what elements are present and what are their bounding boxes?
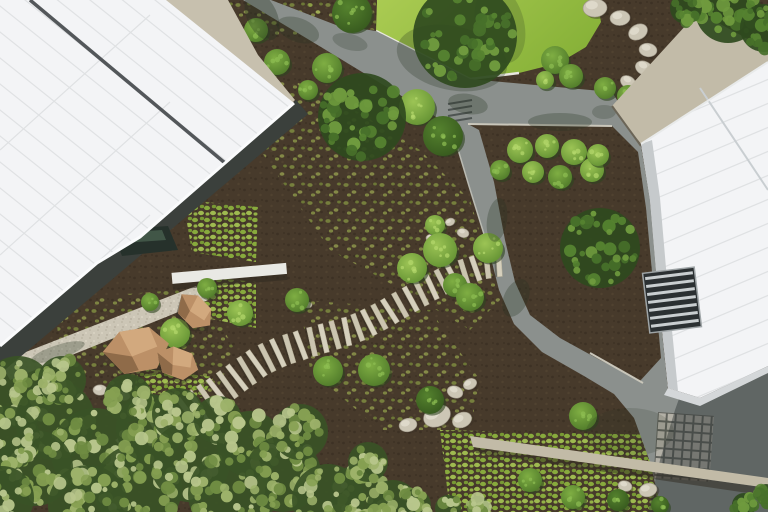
canopy-foliage (388, 121, 397, 130)
bush-leaf (569, 71, 572, 74)
bush-leaf (148, 301, 151, 304)
bush-leaf (322, 374, 325, 377)
canopy-foliage (370, 456, 379, 465)
canopy-foliage (43, 368, 56, 381)
canopy-foliage (467, 38, 478, 49)
canopy-foliage (205, 486, 214, 495)
bush-leaf (326, 363, 330, 367)
canopy-foliage (570, 216, 581, 227)
bush-leaf (579, 156, 584, 161)
canopy-foliage (132, 397, 140, 405)
canopy-foliage (346, 145, 357, 156)
canopy-foliage (176, 422, 184, 430)
aerial-photo-stage (0, 0, 768, 512)
bush-leaf (556, 181, 561, 186)
canopy-foliage (469, 59, 481, 71)
canopy-foliage (54, 477, 67, 490)
bush-leaf (462, 298, 466, 302)
canopy-foliage (259, 450, 267, 458)
canopy-foliage (489, 60, 500, 71)
canopy-foliage (212, 434, 219, 441)
bush-leaf (327, 75, 331, 79)
canopy-foliage (351, 498, 360, 507)
bush-leaf (574, 419, 577, 422)
bush-leaf (528, 171, 530, 173)
canopy-foliage (749, 499, 757, 507)
canopy-foliage (580, 220, 585, 225)
canopy-foliage (501, 19, 510, 28)
canopy-foliage (613, 254, 621, 262)
bush-leaf (563, 173, 568, 178)
canopy-foliage (136, 463, 144, 471)
canopy-foliage (162, 400, 173, 411)
canopy-foliage (477, 50, 485, 58)
canopy-foliage (315, 428, 324, 437)
bush-leaf (291, 304, 295, 308)
canopy-foliage (757, 10, 765, 18)
bush-leaf (420, 105, 423, 108)
canopy-foliage (442, 497, 448, 503)
canopy-foliage (66, 408, 72, 414)
bush-leaf (576, 501, 581, 506)
canopy-foliage (303, 432, 311, 440)
canopy-foliage (606, 229, 612, 235)
canopy-foliage (383, 490, 394, 501)
canopy-foliage (256, 466, 264, 474)
canopy-foliage (22, 377, 32, 387)
canopy-foliage (324, 118, 330, 124)
canopy-foliage (12, 437, 21, 446)
bush-leaf (589, 149, 594, 154)
aerial-courtyard-photo (0, 0, 768, 512)
canopy-foliage (359, 99, 372, 112)
canopy-foliage (387, 85, 400, 98)
bush-leaf (572, 150, 576, 154)
canopy-foliage (122, 379, 132, 389)
canopy-foliage (134, 471, 147, 484)
bush-leaf (355, 6, 358, 9)
canopy-foliage (306, 490, 314, 498)
canopy-foliage (216, 416, 224, 424)
canopy-foliage (220, 399, 234, 413)
bush-leaf (433, 126, 436, 129)
canopy-foliage (354, 103, 359, 108)
bush-leaf (431, 133, 435, 137)
bush-leaf (544, 148, 546, 150)
canopy-foliage (430, 32, 435, 37)
bush-leaf (176, 323, 180, 327)
bush-leaf (659, 497, 663, 501)
canopy-foliage (0, 361, 5, 366)
bush-leaf (439, 254, 442, 257)
canopy-foliage (15, 487, 22, 494)
canopy-foliage (220, 483, 229, 492)
bush-leaf (569, 75, 572, 78)
canopy-foliage (573, 261, 580, 268)
canopy-foliage (84, 491, 96, 503)
canopy-foliage (383, 107, 389, 113)
canopy-foliage (585, 215, 594, 224)
bush-leaf (557, 59, 561, 63)
bush-leaf (238, 303, 242, 307)
bush-leaf (432, 401, 436, 405)
bush-leaf (411, 111, 414, 114)
bush-leaf (349, 11, 354, 16)
canopy-foliage (160, 419, 168, 427)
canopy-foliage (426, 8, 433, 15)
canopy-foliage (74, 441, 88, 455)
canopy-foliage (573, 267, 580, 274)
canopy-foliage (473, 24, 486, 37)
bush-leaf (270, 59, 275, 64)
bush-leaf (278, 54, 283, 59)
louvered-vent (643, 267, 702, 333)
canopy-foliage (135, 432, 149, 446)
canopy-foliage (199, 409, 205, 415)
bush-leaf (662, 505, 666, 509)
bush-leaf (207, 287, 210, 290)
canopy-foliage (91, 483, 102, 494)
canopy-foliage (378, 98, 387, 107)
bush-leaf (456, 283, 460, 287)
canopy-foliage (593, 221, 600, 228)
bush-leaf (411, 114, 415, 118)
canopy-foliage (95, 432, 101, 438)
canopy-foliage (331, 133, 339, 141)
canopy-foliage (347, 89, 355, 97)
canopy-foliage (111, 481, 118, 488)
bush-leaf (552, 140, 555, 143)
canopy-foliage (75, 372, 80, 377)
canopy-foliage (153, 460, 162, 469)
canopy-foliage (161, 481, 175, 495)
canopy-foliage (151, 468, 162, 479)
canopy-foliage (70, 421, 79, 430)
clipped-bush (425, 215, 445, 235)
bush-leaf (302, 88, 305, 91)
canopy-foliage (269, 502, 275, 508)
bush-leaf (174, 330, 178, 334)
canopy-foliage (204, 455, 217, 468)
canopy-foliage (615, 271, 621, 277)
canopy-foliage (91, 424, 97, 430)
bush-leaf (429, 219, 432, 222)
canopy-foliage (131, 501, 137, 507)
bush-leaf (498, 167, 501, 170)
canopy-foliage (6, 469, 11, 474)
bush-leaf (471, 294, 476, 299)
bush-leaf (587, 418, 590, 421)
canopy-foliage (183, 472, 191, 480)
bush-leaf (335, 15, 339, 19)
canopy-foliage (589, 278, 595, 284)
bush-leaf (546, 143, 550, 147)
canopy-foliage (675, 10, 684, 19)
canopy-foliage (18, 447, 25, 454)
canopy-foliage (195, 411, 201, 417)
bush-leaf (581, 411, 586, 416)
canopy-foliage (629, 255, 636, 262)
bush-leaf (452, 288, 457, 293)
bush-leaf (553, 182, 557, 186)
canopy-foliage (608, 279, 614, 285)
canopy-foliage (22, 478, 30, 486)
canopy-foliage (25, 433, 34, 442)
canopy-foliage (129, 408, 137, 416)
canopy-foliage (407, 497, 421, 511)
canopy-foliage (64, 395, 73, 404)
canopy-foliage (295, 442, 300, 447)
clipped-bush (456, 283, 484, 311)
clipped-bush (312, 53, 342, 83)
canopy-foliage (269, 425, 281, 437)
canopy-foliage (320, 101, 327, 108)
canopy-foliage (175, 460, 188, 473)
canopy-foliage (369, 473, 379, 483)
canopy-foliage (317, 468, 323, 474)
canopy-foliage (17, 418, 26, 427)
bush-leaf (520, 151, 524, 155)
bush-leaf (594, 173, 599, 178)
bush-leaf (378, 373, 382, 377)
bush-leaf (238, 312, 241, 315)
canopy-foliage (43, 413, 55, 425)
bush-leaf (338, 0, 343, 5)
bush-leaf (575, 149, 580, 154)
canopy-foliage (591, 211, 597, 217)
canopy-foliage (287, 408, 295, 416)
dappled-shadow (528, 113, 592, 131)
canopy-foliage (450, 74, 457, 81)
canopy-foliage (415, 489, 421, 495)
canopy-foliage (459, 46, 469, 56)
canopy-foliage (376, 111, 389, 124)
bush-leaf (549, 64, 554, 69)
canopy-foliage (182, 391, 187, 396)
canopy-foliage (622, 254, 628, 260)
bush-leaf (299, 291, 302, 294)
bush-leaf (595, 152, 601, 158)
bush-leaf (589, 168, 591, 170)
canopy-foliage (274, 483, 286, 495)
canopy-foliage (333, 492, 339, 498)
canopy-foliage (731, 32, 737, 38)
bush-leaf (439, 248, 443, 252)
bush-leaf (240, 314, 245, 319)
bush-leaf (231, 318, 235, 322)
bush-leaf (360, 6, 365, 11)
bush-leaf (441, 134, 446, 139)
canopy-foliage (91, 410, 98, 417)
bush-leaf (533, 482, 536, 485)
canopy-foliage (118, 440, 131, 453)
bush-leaf (452, 144, 457, 149)
bush-leaf (530, 170, 535, 175)
canopy-foliage (358, 493, 366, 501)
canopy-foliage (491, 13, 497, 19)
bush-leaf (401, 266, 404, 269)
bush-leaf (284, 61, 289, 66)
canopy-foliage (375, 136, 387, 148)
canopy-foliage (755, 39, 763, 47)
clipped-bush (285, 288, 309, 312)
bush-leaf (455, 278, 460, 283)
canopy-foliage (603, 242, 616, 255)
canopy-foliage (271, 472, 279, 480)
bush-leaf (504, 164, 509, 169)
canopy-foliage (504, 47, 509, 52)
clipped-bush (507, 137, 533, 163)
bush-leaf (300, 305, 305, 310)
bush-leaf (442, 142, 447, 147)
canopy-foliage (43, 446, 52, 455)
bush-leaf (407, 278, 410, 281)
canopy-foliage (36, 473, 50, 487)
canopy-foliage (400, 488, 411, 499)
canopy-foliage (238, 446, 245, 453)
canopy-foliage (296, 452, 304, 460)
canopy-foliage (131, 466, 137, 472)
bush-leaf (524, 484, 527, 487)
bush-leaf (586, 172, 591, 177)
canopy-foliage (746, 38, 754, 46)
bush-leaf (544, 79, 547, 82)
canopy-foliage (564, 245, 576, 257)
canopy-foliage (131, 423, 139, 431)
bush-leaf (163, 327, 167, 331)
canopy-foliage (723, 7, 734, 18)
canopy-foliage (369, 85, 378, 94)
bush-leaf (328, 67, 333, 72)
canopy-foliage (102, 497, 111, 506)
canopy-foliage (356, 151, 366, 161)
bush-leaf (529, 478, 532, 481)
bush-leaf (491, 247, 493, 249)
bush-leaf (425, 388, 429, 392)
canopy-foliage (714, 25, 722, 33)
canopy-foliage (5, 408, 16, 419)
canopy-foliage (691, 12, 697, 18)
bush-leaf (366, 362, 371, 367)
bush-leaf (427, 398, 431, 402)
canopy-foliage (16, 360, 23, 367)
canopy-foliage (47, 394, 55, 402)
canopy-foliage (298, 408, 311, 421)
canopy-foliage (425, 64, 431, 70)
canopy-foliage (357, 445, 365, 453)
bush-leaf (295, 301, 299, 305)
bush-leaf (436, 220, 441, 225)
canopy-foliage (109, 387, 120, 398)
bush-leaf (411, 266, 416, 271)
canopy-foliage (154, 442, 164, 452)
dappled-shadow (586, 408, 674, 456)
canopy-foliage (504, 12, 511, 19)
bush-leaf (564, 74, 569, 79)
bush-leaf (546, 53, 549, 56)
canopy-foliage (388, 110, 398, 120)
canopy-foliage (119, 498, 129, 508)
bush-leaf (587, 414, 592, 419)
canopy-foliage (481, 7, 488, 14)
canopy-foliage (471, 501, 477, 507)
bush-leaf (567, 497, 572, 502)
canopy-foliage (432, 62, 438, 68)
bush-leaf (522, 480, 525, 483)
bush-leaf (408, 260, 413, 265)
canopy-foliage (334, 473, 345, 484)
canopy-foliage (576, 230, 581, 235)
canopy-foliage (350, 457, 358, 465)
bush-leaf (308, 85, 312, 89)
canopy-foliage (237, 454, 246, 463)
canopy-foliage (57, 429, 64, 436)
canopy-foliage (155, 408, 160, 413)
canopy-foliage (315, 474, 321, 480)
bush-leaf (298, 87, 302, 91)
canopy-foliage (334, 89, 348, 103)
canopy-foliage (494, 22, 501, 29)
canopy-foliage (591, 253, 601, 263)
canopy-foliage (165, 447, 174, 456)
canopy-foliage (277, 441, 288, 452)
canopy-foliage (420, 40, 429, 49)
canopy-foliage (55, 370, 66, 381)
bush-leaf (496, 242, 501, 247)
bush-leaf (577, 488, 580, 491)
canopy-foliage (232, 416, 245, 429)
canopy-foliage (486, 38, 494, 46)
bush-leaf (453, 135, 456, 138)
canopy-foliage (611, 214, 620, 223)
canopy-foliage (250, 485, 259, 494)
canopy-foliage (303, 446, 313, 456)
canopy-foliage (579, 251, 585, 257)
canopy-foliage (165, 473, 173, 481)
bush-leaf (370, 357, 372, 359)
canopy-foliage (350, 125, 355, 130)
canopy-foliage (81, 475, 92, 486)
bush-leaf (612, 497, 617, 502)
canopy-foliage (289, 421, 299, 431)
canopy-foliage (70, 489, 82, 501)
bush-leaf (211, 287, 214, 290)
canopy-foliage (62, 387, 68, 393)
bush-leaf (431, 240, 435, 244)
canopy-foliage (357, 470, 363, 476)
bush-leaf (558, 55, 562, 59)
bush-leaf (433, 226, 436, 229)
canopy-foliage (172, 433, 183, 444)
bush-leaf (154, 301, 158, 305)
canopy-foliage (58, 360, 69, 371)
bush-leaf (529, 177, 532, 180)
canopy-foliage (618, 241, 630, 253)
canopy-foliage (321, 124, 330, 133)
canopy-foliage (601, 263, 610, 272)
bush-leaf (513, 144, 518, 149)
bush-leaf (151, 298, 153, 300)
canopy-foliage (194, 494, 201, 501)
canopy-foliage (256, 494, 268, 506)
bush-leaf (492, 169, 497, 174)
canopy-foliage (232, 481, 245, 494)
bush-leaf (603, 86, 606, 89)
bush-leaf (170, 325, 175, 330)
canopy-foliage (122, 468, 130, 476)
bush-leaf (478, 291, 483, 296)
canopy-foliage (508, 29, 517, 38)
